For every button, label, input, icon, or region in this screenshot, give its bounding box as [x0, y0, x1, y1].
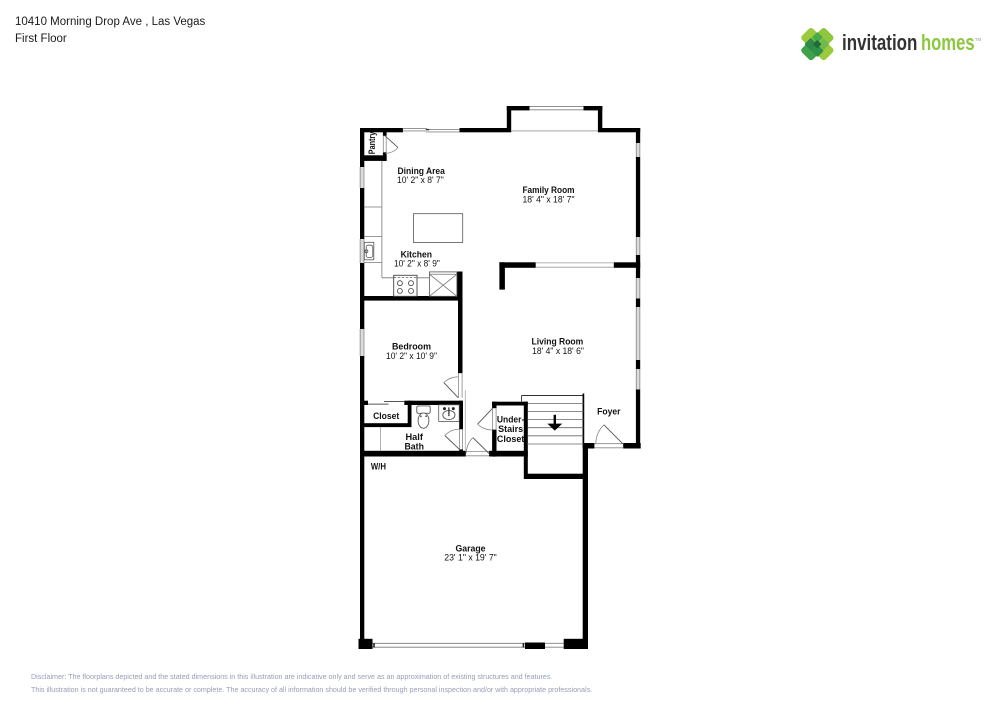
svg-text:10' 2" x 10' 9": 10' 2" x 10' 9": [386, 351, 437, 361]
svg-text:Living Room: Living Room: [532, 337, 584, 347]
svg-text:Under-: Under-: [497, 415, 524, 425]
svg-text:Closet: Closet: [373, 411, 399, 421]
svg-text:Pantry: Pantry: [367, 132, 377, 155]
svg-text:Closet: Closet: [497, 434, 525, 444]
svg-text:10' 2" x 8' 9": 10' 2" x 8' 9": [394, 259, 440, 269]
svg-text:Family Room: Family Room: [523, 185, 575, 195]
svg-text:18' 4" x 18' 7": 18' 4" x 18' 7": [523, 195, 575, 205]
svg-text:18' 4" x 18' 6": 18' 4" x 18' 6": [532, 346, 584, 356]
svg-text:Stairs: Stairs: [498, 424, 523, 434]
svg-text:23' 1" x 19' 7": 23' 1" x 19' 7": [444, 553, 497, 563]
svg-text:W/H: W/H: [371, 462, 386, 472]
svg-text:10' 2" x 8' 7": 10' 2" x 8' 7": [397, 175, 444, 185]
svg-text:Foyer: Foyer: [597, 406, 621, 416]
svg-text:Bath: Bath: [404, 441, 424, 451]
svg-text:Bedroom: Bedroom: [392, 342, 431, 352]
